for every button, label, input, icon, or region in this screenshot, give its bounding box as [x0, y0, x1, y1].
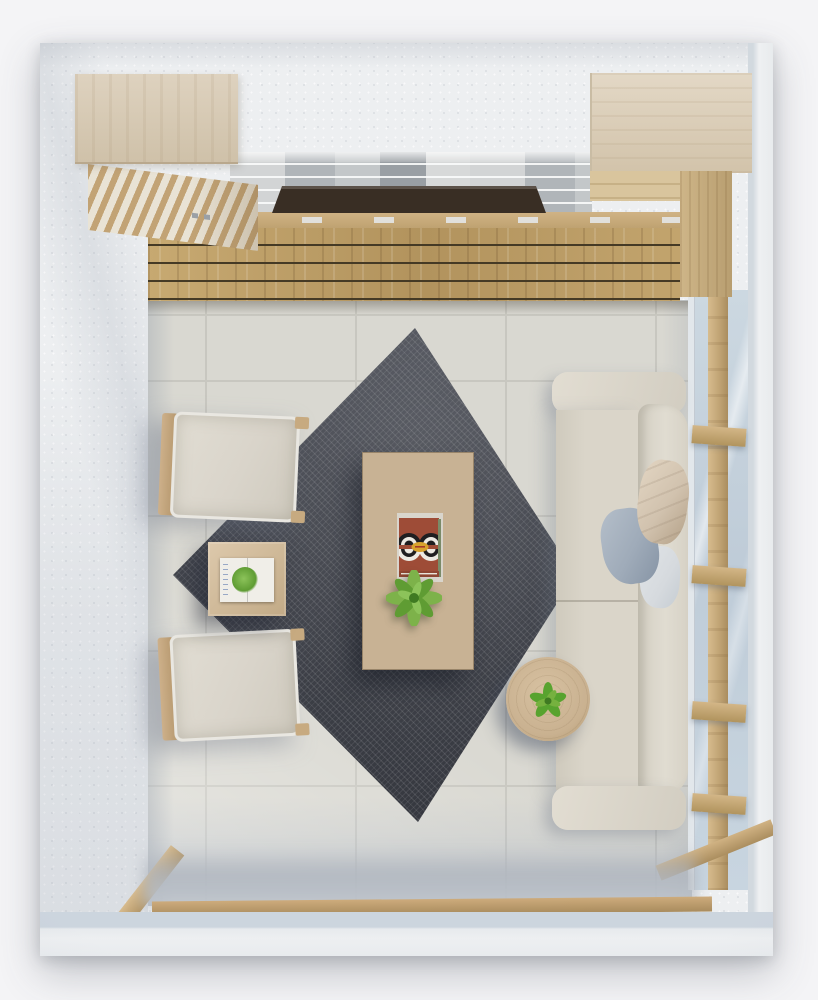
window-wall — [688, 290, 748, 890]
window-crossbar — [691, 793, 746, 815]
right-cabinet — [590, 73, 752, 173]
potted-plant — [386, 570, 442, 626]
room-render — [40, 43, 773, 956]
right-cabinet-band — [590, 171, 682, 201]
small-plant — [528, 681, 568, 721]
right-cabinet-face — [680, 171, 732, 297]
side-table — [208, 542, 286, 616]
armchair-cushion — [170, 411, 301, 522]
render-canvas — [0, 0, 818, 1000]
armchair-bottom — [157, 628, 307, 742]
armchair-top — [158, 411, 307, 523]
console-shadow — [148, 301, 692, 315]
open-book — [220, 558, 274, 602]
armrest-tab — [295, 417, 310, 430]
bottom-wall — [40, 912, 773, 956]
coffee-table — [362, 452, 474, 670]
left-cabinet — [75, 74, 238, 164]
book-plant-illustration — [232, 567, 258, 593]
tv — [272, 186, 546, 213]
round-end-table — [506, 657, 590, 741]
window-crossbar — [691, 701, 746, 723]
sofa-armrest-bottom — [552, 786, 686, 830]
armrest-tab — [291, 511, 306, 524]
armrest-tab — [290, 628, 305, 641]
sofa — [552, 372, 692, 830]
window-crossbar — [691, 565, 746, 587]
armrest-tab — [295, 723, 310, 736]
armchair-cushion — [169, 629, 300, 742]
window-crossbar — [691, 425, 746, 447]
